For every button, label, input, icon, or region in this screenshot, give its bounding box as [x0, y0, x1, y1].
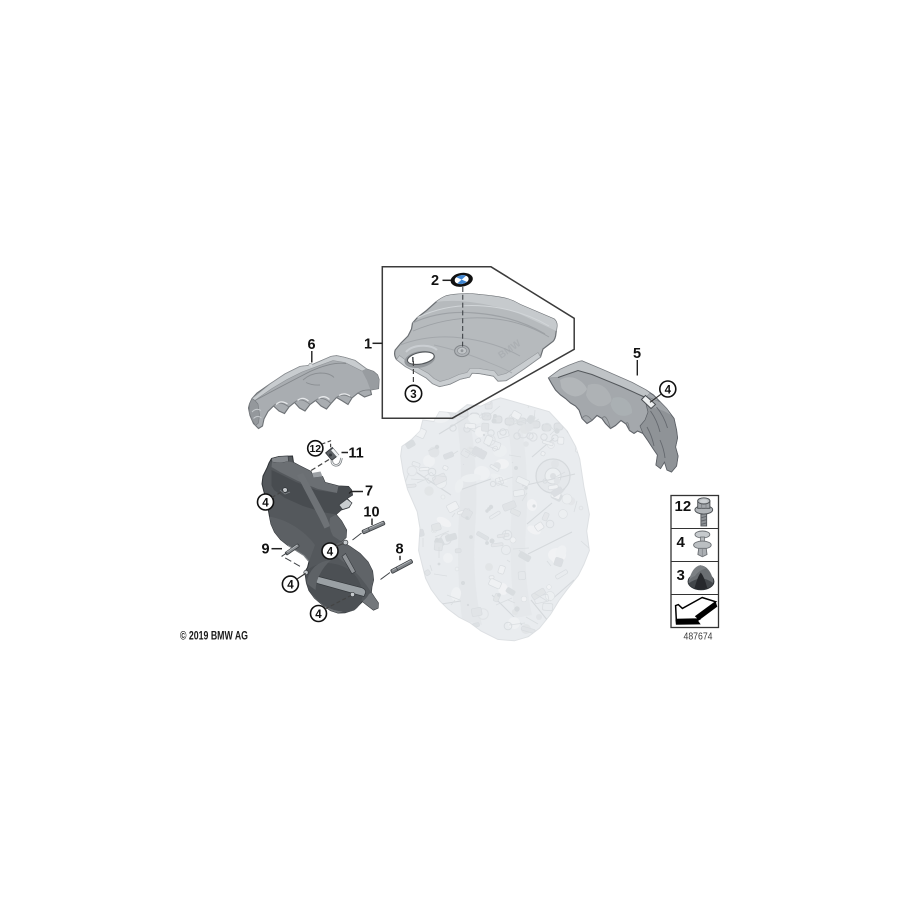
svg-text:4: 4 [677, 534, 686, 551]
svg-text:487674: 487674 [684, 632, 713, 643]
svg-text:5: 5 [633, 346, 641, 362]
svg-text:2: 2 [431, 273, 439, 289]
svg-text:© 2019 BMW AG: © 2019 BMW AG [180, 628, 248, 642]
svg-text:7: 7 [365, 484, 373, 500]
svg-text:4: 4 [665, 384, 672, 396]
svg-text:1: 1 [364, 337, 372, 353]
svg-text:4: 4 [262, 497, 269, 509]
svg-text:4: 4 [327, 546, 334, 558]
svg-text:6: 6 [307, 337, 315, 353]
svg-text:4: 4 [315, 609, 322, 621]
svg-text:9: 9 [261, 542, 269, 558]
svg-text:10: 10 [363, 505, 379, 521]
svg-text:12: 12 [309, 443, 321, 455]
svg-text:8: 8 [395, 542, 403, 558]
svg-text:4: 4 [287, 579, 294, 591]
svg-text:3: 3 [410, 389, 416, 401]
svg-text:11: 11 [348, 445, 363, 461]
svg-text:3: 3 [677, 567, 685, 584]
svg-text:12: 12 [675, 498, 692, 515]
